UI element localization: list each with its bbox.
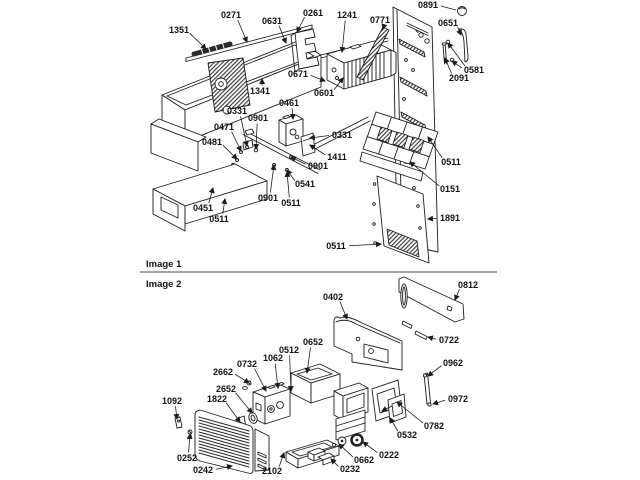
part-label-0972: 0972	[448, 394, 468, 404]
leader-line	[455, 289, 459, 300]
image1-drawing	[151, 7, 468, 264]
grille-end-cap	[255, 429, 269, 471]
leader-line	[428, 337, 436, 339]
leader-line	[270, 165, 274, 193]
screw-2662	[243, 381, 251, 389]
leader-line	[339, 444, 353, 457]
part-label-0671: 0671	[288, 69, 308, 79]
part-label-1411: 1411	[327, 152, 347, 162]
leader-line	[256, 123, 257, 149]
leader-line	[287, 172, 289, 198]
part-label-0901: 0901	[308, 161, 328, 171]
part-label-0451: 0451	[193, 203, 213, 213]
leader-line	[238, 20, 247, 42]
exploded-parts-diagram: Image 1 Image 2 027106311351026112410771…	[0, 0, 640, 480]
leader-line	[235, 374, 249, 383]
trim-strip-0962	[423, 373, 431, 406]
dispenser-housing	[253, 382, 290, 424]
part-label-0812: 0812	[458, 280, 478, 290]
drive-wheel	[352, 435, 363, 446]
part-label-0511: 0511	[441, 157, 461, 167]
part-label-0662: 0662	[354, 455, 374, 465]
part-label-2652: 2652	[216, 384, 236, 394]
part-label-1891: 1891	[440, 213, 460, 223]
leader-line	[223, 145, 237, 159]
part-label-0151: 0151	[440, 184, 460, 194]
part-label-0232: 0232	[340, 464, 360, 474]
gear	[332, 437, 346, 447]
part-label-1341: 1341	[250, 86, 270, 96]
roll-pins	[402, 321, 427, 340]
part-label-0222: 0222	[379, 450, 399, 460]
part-label-0631: 0631	[262, 16, 282, 26]
part-label-0651: 0651	[438, 18, 458, 28]
image2-title: Image 2	[146, 279, 181, 290]
part-label-0732: 0732	[237, 359, 257, 369]
leader-line	[279, 453, 284, 466]
part-label-0331: 0331	[227, 106, 247, 116]
part-label-0461: 0461	[279, 98, 299, 108]
leader-line	[331, 459, 338, 466]
part-label-1092: 1092	[162, 396, 182, 406]
leader-line	[363, 442, 377, 453]
chute-frame-0652	[291, 364, 340, 403]
part-label-0901: 0901	[248, 113, 268, 123]
ice-maker	[327, 41, 396, 89]
part-label-0891: 0891	[418, 0, 438, 10]
part-label-0652: 0652	[303, 337, 323, 347]
pin-2091	[443, 45, 445, 64]
part-label-0402: 0402	[323, 292, 343, 302]
leader-line	[297, 17, 305, 32]
part-label-0511: 0511	[326, 241, 346, 251]
leader-line	[448, 43, 465, 66]
clip-1092	[175, 417, 182, 428]
part-label-0541: 0541	[295, 179, 315, 189]
part-label-0252: 0252	[177, 453, 197, 463]
module-bracket	[301, 133, 315, 156]
part-label-0331: 0331	[332, 130, 352, 140]
part-label-0962: 0962	[443, 358, 463, 368]
part-label-1241: 1241	[337, 10, 357, 20]
leader-line	[452, 61, 462, 68]
leader-line	[175, 406, 177, 419]
part-label-0271: 0271	[221, 10, 241, 20]
leader-line	[279, 26, 286, 43]
part-label-0261: 0261	[303, 8, 323, 18]
bezel-frames	[372, 380, 406, 423]
part-label-2662: 2662	[213, 367, 233, 377]
motor-housing	[334, 383, 368, 440]
rail-clip	[194, 42, 230, 54]
leader-line	[428, 366, 441, 376]
chute-bracket-0402	[334, 317, 402, 370]
part-label-0242: 0242	[193, 465, 213, 475]
part-label-1822: 1822	[207, 394, 227, 404]
part-label-0771: 0771	[370, 15, 390, 25]
part-label-0901: 0901	[258, 193, 278, 203]
control-module	[279, 115, 303, 146]
part-label-1351: 1351	[169, 25, 189, 35]
part-label-0601: 0601	[314, 88, 334, 98]
leader-line	[190, 33, 206, 49]
part-label-0722: 0722	[439, 335, 459, 345]
leader-line	[287, 170, 295, 181]
part-label-0532: 0532	[397, 430, 417, 440]
part-label-2102: 2102	[262, 466, 282, 476]
leader-line	[433, 400, 445, 404]
leader-line	[236, 393, 252, 413]
leader-line	[254, 368, 266, 391]
part-label-0471: 0471	[214, 122, 234, 132]
leader-line	[232, 131, 241, 151]
leader-line	[342, 20, 345, 52]
leader-line	[441, 6, 456, 10]
leader-line	[189, 434, 190, 453]
part-label-2091: 2091	[449, 73, 469, 83]
part-label-0511: 0511	[209, 214, 229, 224]
part-label-0511: 0511	[281, 198, 301, 208]
part-label-1062: 1062	[263, 353, 283, 363]
leader-line	[340, 302, 347, 319]
mount-bracket-0812	[399, 277, 464, 322]
parts-diagram-page: Image 1 Image 2 027106311351026112410771…	[0, 0, 640, 480]
image1-title: Image 1	[146, 259, 182, 270]
leader-line	[349, 244, 381, 246]
part-label-0782: 0782	[424, 421, 444, 431]
part-label-0481: 0481	[202, 137, 222, 147]
